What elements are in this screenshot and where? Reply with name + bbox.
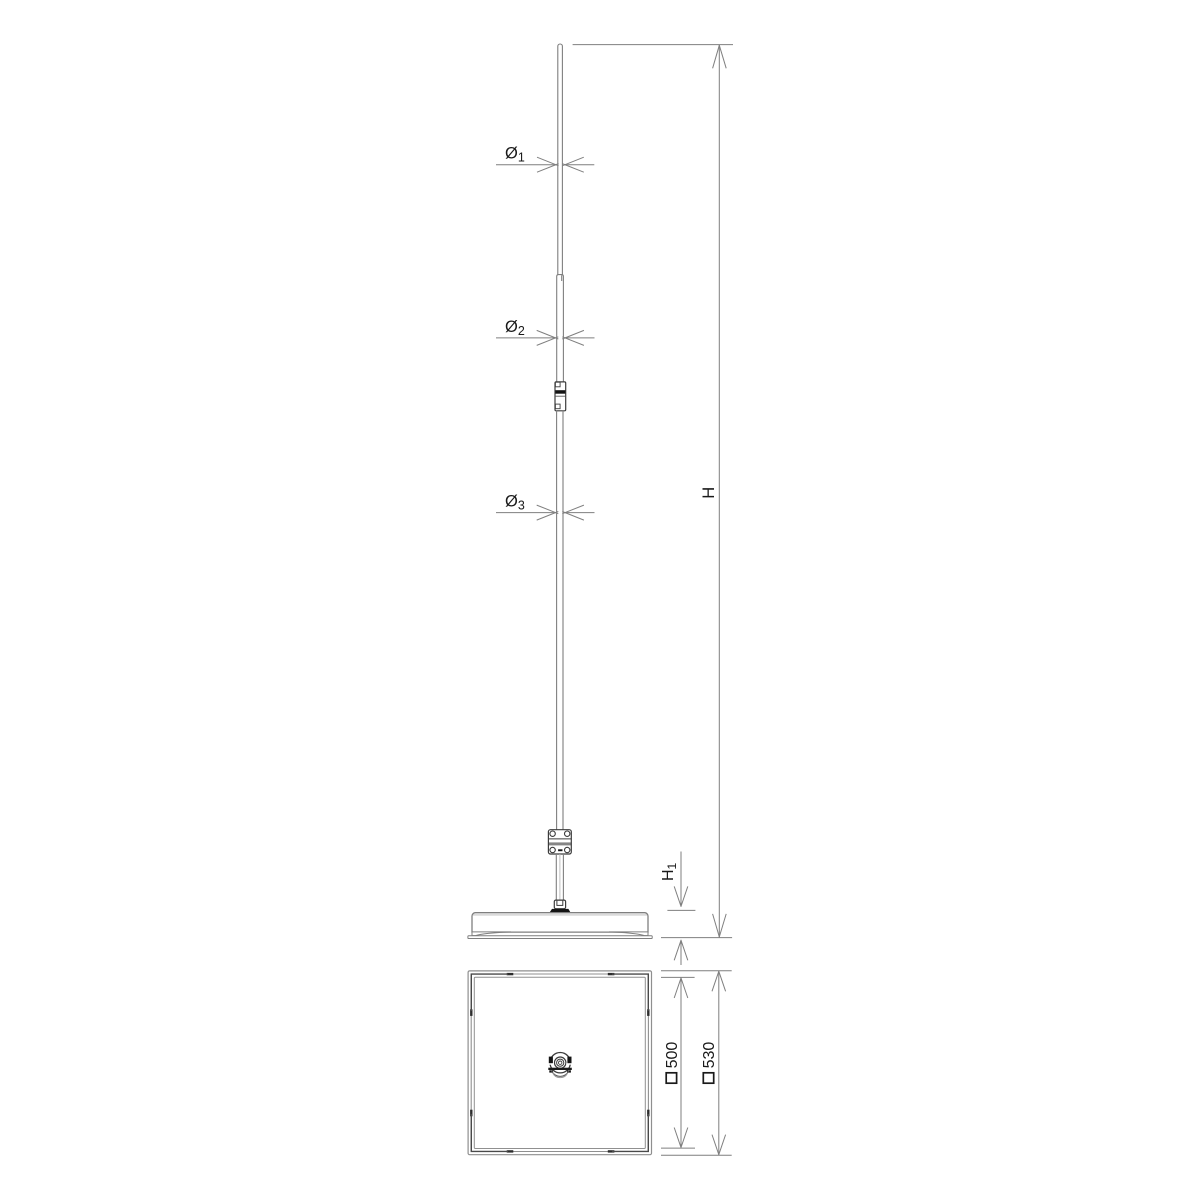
svg-text:H: H [700,487,718,499]
svg-text:530: 530 [701,1042,718,1069]
svg-text:500: 500 [664,1042,681,1069]
